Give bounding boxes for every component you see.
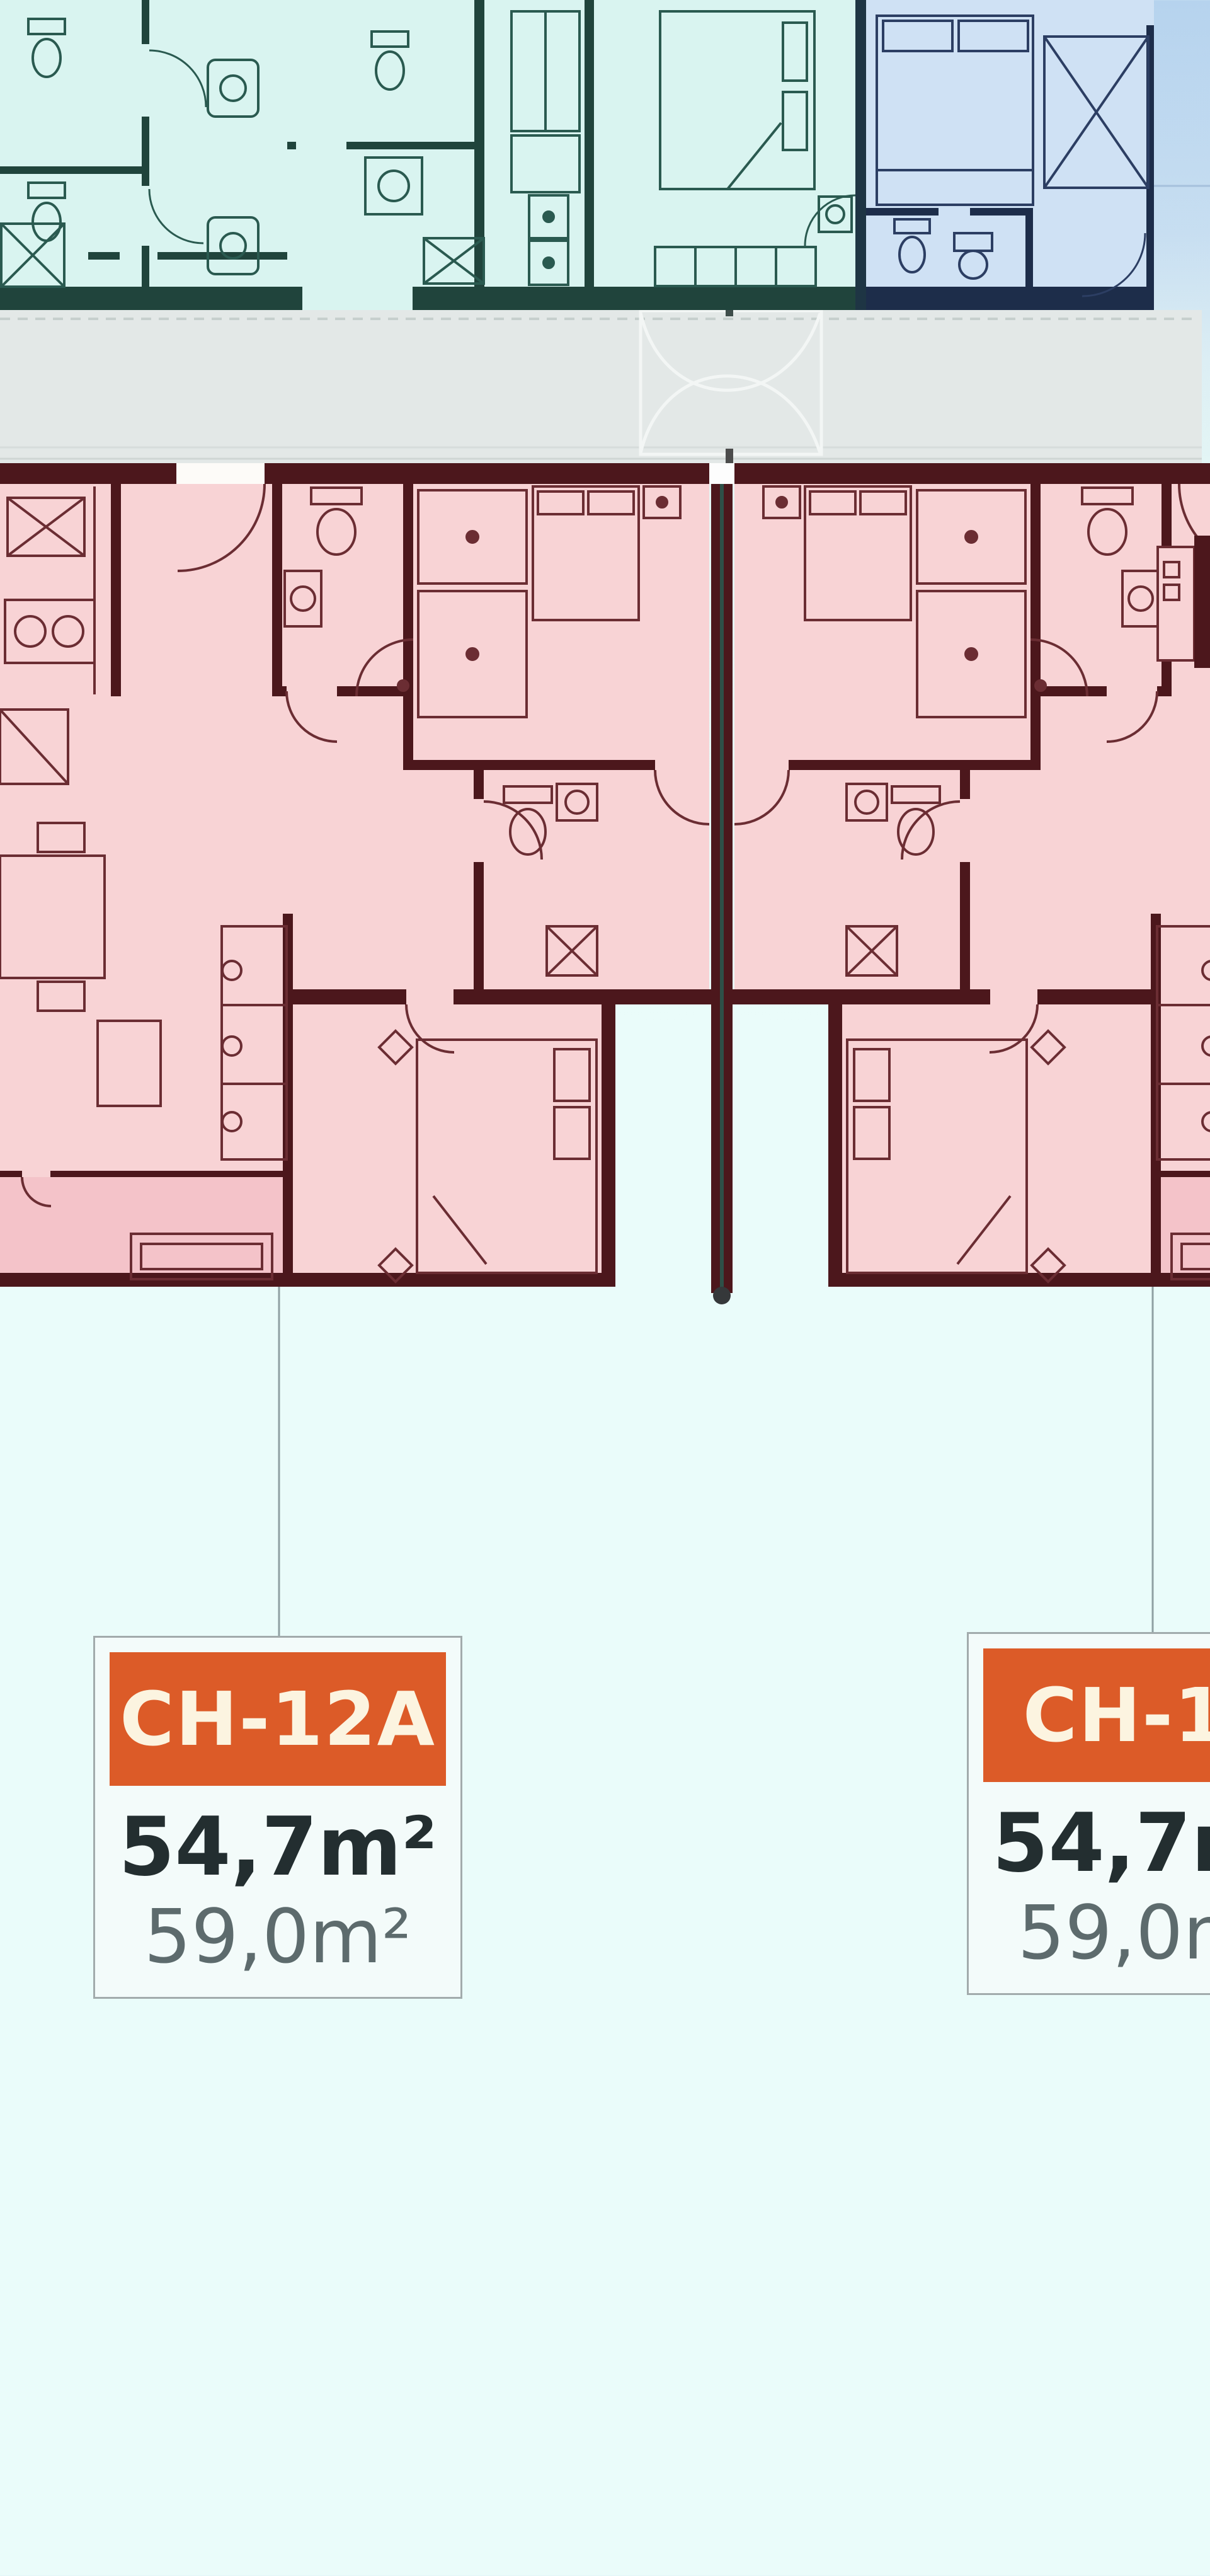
upper-floorplan [0,0,1210,310]
unit-card-ch12a[interactable]: CH-12A 54,7m² 59,0m² [93,1636,462,1999]
floor-plan-svg [0,0,1210,2576]
party-wall [711,484,733,1304]
unit-area-construction: 54,7m² [992,1798,1210,1889]
unit-area-total: 59,0m² [1018,1891,1210,1974]
unit-code-badge: CH-12A [110,1652,446,1786]
unit-ch12a-plan[interactable] [0,463,722,1287]
corridor [0,295,1202,474]
unit-card-ch15[interactable]: CH-15 54,7m² 59,0m² [967,1632,1210,1995]
unit-code-badge: CH-15 [983,1648,1210,1782]
unit-area-total: 59,0m² [144,1895,412,1978]
unit-ch15-plan[interactable] [722,463,1210,1287]
unit-area-construction: 54,7m² [118,1802,437,1892]
